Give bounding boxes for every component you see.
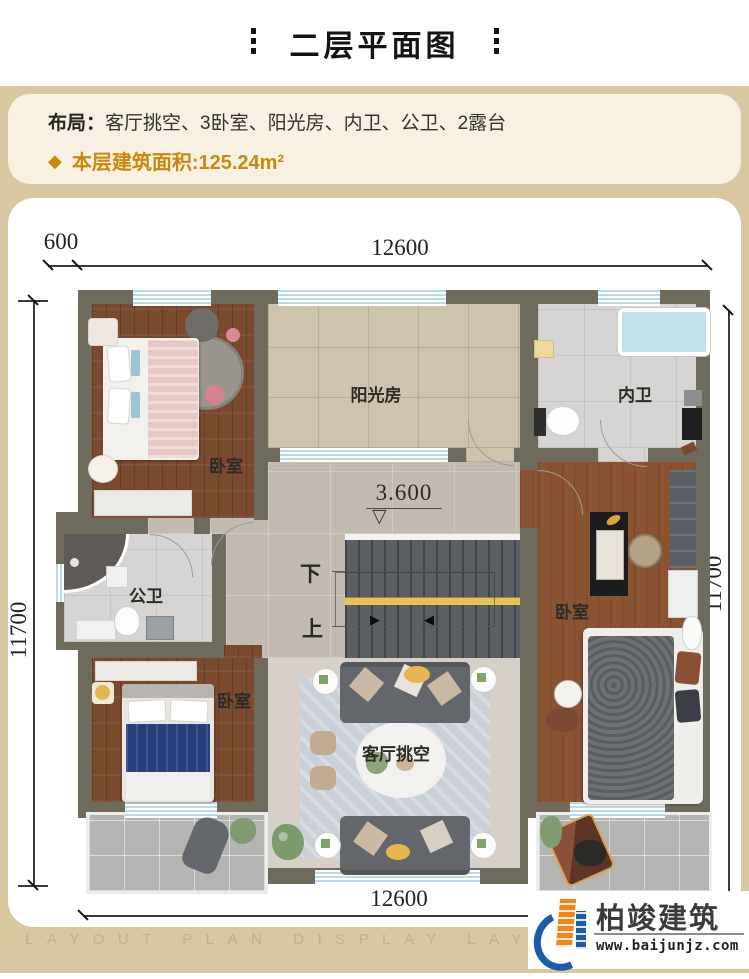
logo-icon [534,897,592,961]
stair-arrow-right-icon: ▶ [370,612,380,628]
dim-line-left [33,300,35,886]
toilet [546,406,580,436]
towel-shelf [534,340,554,358]
room-label-living: 客厅挑空 [340,740,452,765]
pouf [546,708,580,732]
page-header: 二层平面图 [0,0,749,86]
pillow-accent [131,350,140,376]
plant [540,816,562,848]
window-bedroom-bl [125,802,217,818]
dresser [94,490,192,516]
decor-dot [95,685,110,700]
window-inner-bath [598,290,660,306]
plant-small [321,839,330,848]
page-background: 二层平面图 布局：客厅挑空、3卧室、阳光房、内卫、公卫、2露台 ◆ 本层建筑面积… [0,0,749,973]
desk-papers [596,530,624,580]
nightstand [88,455,118,483]
pillow [106,345,131,383]
bathtub [618,308,710,356]
layout-label: 布局： [48,113,105,134]
pillow-accent [131,392,140,418]
logo-building-blue [576,911,586,949]
door-gap-public-bath [148,518,194,534]
dim-left-height: 11700 [6,590,32,670]
dim-bottom-width: 12600 [349,886,449,912]
plant [272,824,304,860]
wardrobe [670,470,696,568]
pillow [675,689,702,723]
layout-line: 布局：客厅挑空、3卧室、阳光房、内卫、公卫、2露台 [48,108,506,135]
title-dash-right-icon [494,28,499,58]
room-label-public-bath: 公卫 [110,582,182,607]
pillow [674,651,701,685]
title-dash-left-icon [251,28,256,58]
tray [404,666,430,683]
bench [682,616,702,650]
door-gap-bedroom-bl [224,645,262,658]
pillow [127,699,166,723]
toilet-tank [534,408,546,436]
bath-unit [682,408,702,440]
window-public-bath [54,564,64,602]
washer [146,616,174,640]
room-label-bedroom-bl: 卧室 [198,687,270,712]
blanket [588,636,674,800]
window-sunroom-top [278,290,446,306]
closet [95,661,197,681]
blanket-throw [574,840,606,866]
dim-line-right [728,310,730,900]
desk-chair [628,534,662,568]
stair-up-leader [332,626,492,627]
stair-down-leader [332,571,492,572]
bath-cabinet [684,390,702,406]
area-line: ◆ 本层建筑面积:125.24m² [48,146,284,175]
dim-top-offset: 600 [36,229,86,255]
decor-dot [226,328,240,342]
stair-up-label: 上 [302,613,323,643]
stair-arrow-left-icon: ◀ [424,612,434,628]
cabinet [668,570,698,618]
logo-name: 柏竣建筑 [596,895,720,937]
page-title: 二层平面图 [290,21,460,65]
room-label-bedroom-right: 卧室 [536,598,608,623]
duvet [126,772,210,800]
door-gap-bedroom-right [520,470,538,528]
room-label-inner-bath: 内卫 [599,381,671,406]
pillow [107,387,131,424]
room-label-sunroom: 阳光房 [340,381,412,406]
window-sunroom-bottom [280,448,448,462]
stair-void-outline [335,572,495,627]
logo-divider [594,933,744,935]
stair-down-label: 下 [300,558,321,588]
side-table [554,680,582,708]
ottoman [310,731,336,755]
layout-value: 客厅挑空、3卧室、阳光房、内卫、公卫、2露台 [105,113,506,134]
tray [386,844,410,860]
logo-url: www.baijunjz.com [596,938,739,954]
plant-small [477,839,486,848]
elevation-marker-icon: ▽ [372,505,387,528]
logo-block: 柏竣建筑 www.baijunjz.com [528,891,749,969]
dim-line-top [48,265,707,267]
plant-small [477,673,486,682]
ottoman [310,766,336,790]
blanket [126,724,210,772]
small-rug [185,308,219,342]
sink [76,620,116,640]
area-text: 本层建筑面积:125.24m² [72,146,284,175]
dim-top-width: 12600 [350,235,450,261]
nightstand [88,318,118,346]
info-card: 布局：客厅挑空、3卧室、阳光房、内卫、公卫、2露台 ◆ 本层建筑面积:125.2… [8,94,741,184]
decor-dot [205,385,225,405]
diamond-icon: ◆ [48,152,62,170]
shower-head [70,558,79,567]
window-bedroom-tl [133,290,211,306]
toilet [114,606,140,636]
plant-small [319,675,328,684]
room-label-bedroom-tl: 卧室 [190,452,262,477]
blanket [148,340,198,458]
